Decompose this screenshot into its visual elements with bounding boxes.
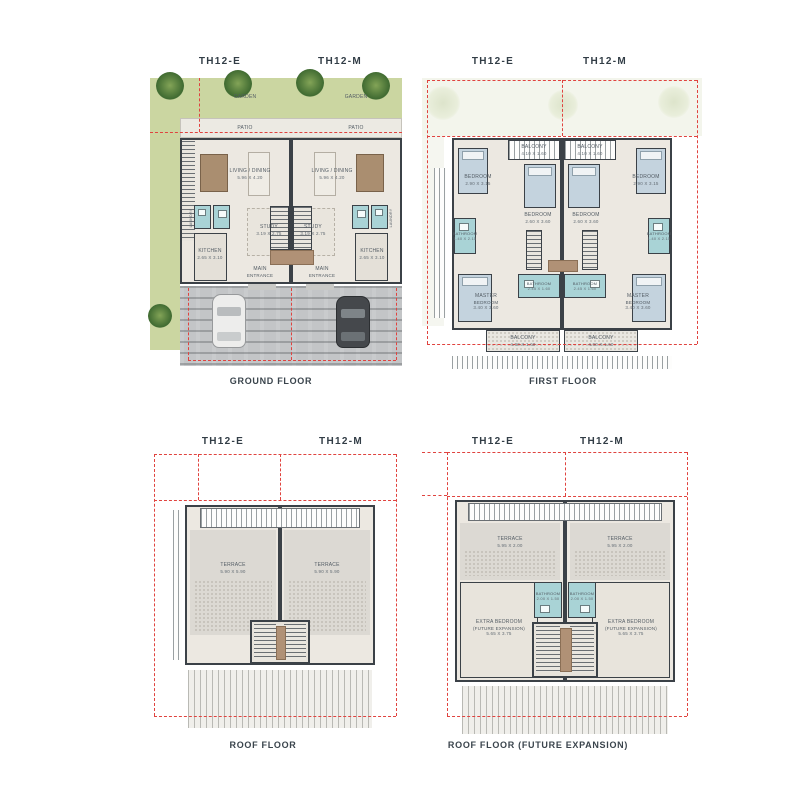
unit-label-ground-m: TH12-M	[318, 56, 362, 67]
bedroom-inner-label-e: BEDROOM 2.60 X 3.60	[524, 212, 551, 224]
master-dim: 3.40 X 3.60	[473, 305, 498, 311]
pergola-strip	[468, 503, 662, 521]
terrace-text: TERRACE	[314, 562, 339, 569]
bedroom-dim: 2.90 X 3.15	[632, 180, 659, 186]
living-text: LIVING / DINING	[229, 168, 270, 175]
terrace-label-e: TERRACE 5.90 X 5.90	[220, 562, 245, 574]
caption-first-floor: FIRST FLOOR	[529, 376, 597, 386]
plot-line	[280, 454, 281, 500]
bed-outer-m	[636, 148, 666, 194]
balcony-dim: 4.00 X 1.60	[588, 341, 613, 347]
unit-label-first-e: TH12-E	[472, 56, 514, 67]
plot-line	[150, 132, 402, 133]
ground-floor-plan: GARDEN GARDEN PATIO PATIO LIVING / DININ…	[150, 78, 402, 370]
bedroom-text: BEDROOM	[572, 212, 599, 219]
bedroom-inner-label-m: BEDROOM 2.60 X 3.60	[572, 212, 599, 224]
extra-bedroom-label-e: EXTRA BEDROOM (FUTURE EXPANSION) 5.65 X …	[473, 619, 525, 637]
tree-wash-icon	[658, 86, 690, 118]
patio-label-e: PATIO	[237, 125, 252, 132]
terrace-dim: 5.90 X 5.90	[314, 568, 339, 574]
plot-line	[687, 452, 688, 716]
laundry-label-e: LAUNDRY	[189, 209, 193, 228]
car-windshield	[217, 307, 241, 316]
balcony-dim: 4.00 X 1.60	[510, 341, 535, 347]
palm-tree-icon	[148, 304, 172, 328]
bathroom-mid-label-e: BATHROOM 2.45 X 1.60	[527, 281, 551, 291]
kitchen-dim: 2.65 X 3.10	[197, 254, 222, 260]
plot-line	[447, 452, 687, 453]
patio-text: PATIO	[237, 125, 252, 132]
bathroom-m	[371, 205, 388, 229]
plot-line	[447, 452, 448, 716]
car-rear-window	[341, 332, 365, 341]
living-text: LIVING / DINING	[311, 168, 352, 175]
living-dim: 5.96 X 4.20	[229, 174, 270, 180]
tree-wash-icon	[426, 86, 460, 120]
plot-line	[198, 454, 199, 500]
roof-floor-plan: TERRACE 5.90 X 5.90 TERRACE 5.90 X 5.90	[150, 450, 400, 742]
bed-outer-e	[458, 148, 488, 194]
terrace-text: TERRACE	[497, 536, 522, 543]
terrace-text: TERRACE	[220, 562, 245, 569]
balcony-text: BALCONY	[577, 144, 602, 151]
bedroom-text: BEDROOM	[632, 174, 659, 181]
plot-line	[697, 80, 698, 344]
plot-line	[154, 500, 396, 501]
plot-line	[396, 288, 397, 360]
bathroom-label-m: BATHROOM 2.00 X 1.50	[570, 591, 594, 601]
kitchen-text: KITCHEN	[197, 248, 222, 255]
patio-label-m: PATIO	[348, 125, 363, 132]
study-text: STUDY	[256, 224, 281, 231]
balcony-dim: 4.10 X 1.60	[577, 150, 602, 156]
master-bedroom-label-e: MASTER BEDROOM 3.40 X 3.60	[473, 293, 498, 311]
balcony-dim: 4.10 X 1.60	[521, 150, 546, 156]
bedroom-dim: 2.90 X 3.15	[464, 180, 491, 186]
side-path	[434, 168, 446, 318]
plot-line	[199, 78, 200, 132]
study-dim: 3.19 X 2.75	[300, 230, 325, 236]
bathroom-dim: 1.40 X 2.15	[647, 236, 671, 241]
bathroom-mid-label-m: BATHROOM 2.45 X 1.60	[573, 281, 597, 291]
plot-line	[427, 136, 697, 137]
study-label-m: STUDY 3.19 X 2.75	[300, 224, 325, 236]
main-entrance-label-m: MAIN ENTRANCE	[309, 266, 335, 278]
bedroom-text: BEDROOM	[464, 174, 491, 181]
entrance-text-2: ENTRANCE	[309, 272, 335, 278]
stair-landing	[560, 628, 572, 672]
plot-line	[562, 80, 563, 136]
first-floor-plan: BALCONY 4.10 X 1.60 BALCONY 4.10 X 1.60 …	[422, 78, 702, 370]
study-label-e: STUDY 3.19 X 2.75	[256, 224, 281, 236]
terrace-label-m: TERRACE 5.95 X 2.00	[607, 536, 632, 548]
palm-tree-icon	[296, 69, 324, 97]
stairs-e	[254, 624, 276, 660]
stairs-m	[582, 230, 598, 270]
unit-label-roof-m: TH12-M	[319, 436, 363, 447]
master-dim: 3.40 X 3.60	[625, 305, 650, 311]
plot-line	[447, 496, 687, 497]
bathroom-dim: 2.00 X 1.50	[536, 596, 560, 601]
ground-hatch	[462, 686, 668, 734]
plot-line	[291, 288, 292, 360]
unit-label-roofx-e: TH12-E	[472, 436, 514, 447]
patio-strip	[180, 118, 402, 138]
plot-line	[188, 288, 189, 360]
extra-bedroom-dim: 5.65 X 3.75	[605, 631, 657, 637]
bathroom-label-e: BATHROOM 2.00 X 1.50	[536, 591, 560, 601]
balcony-bottom-label-e: BALCONY 4.00 X 1.60	[510, 335, 535, 347]
bathroom-side-label-m: BATHROOM 1.40 X 2.15	[647, 231, 671, 241]
car-windshield	[341, 309, 365, 318]
master-bedroom-label-m: MASTER BEDROOM 3.40 X 3.60	[625, 293, 650, 311]
unit-label-first-m: TH12-M	[583, 56, 627, 67]
ground-edge-hatch	[452, 356, 672, 369]
stair-landing	[548, 260, 578, 272]
bathroom-dim: 2.45 X 1.60	[573, 286, 597, 291]
plot-line	[422, 495, 447, 496]
pergola-strip	[200, 508, 360, 528]
dining-table-m	[356, 154, 384, 192]
bathroom-dim: 1.40 X 2.15	[453, 236, 477, 241]
side-path	[173, 510, 182, 660]
unit-label-roofx-m: TH12-M	[580, 436, 624, 447]
bedroom-text: BEDROOM	[524, 212, 551, 219]
plot-line	[427, 344, 697, 345]
bedroom-outer-label-e: BEDROOM 2.90 X 3.15	[464, 174, 491, 186]
extra-bedroom-label-m: EXTRA BEDROOM (FUTURE EXPANSION) 5.65 X …	[605, 619, 657, 637]
caption-ground-floor: GROUND FLOOR	[230, 376, 312, 386]
entry-porch-e	[248, 284, 276, 290]
bathroom-dim: 2.00 X 1.50	[570, 596, 594, 601]
extra-bedroom-dim: 5.65 X 3.75	[473, 631, 525, 637]
stairs-e	[526, 230, 542, 270]
palm-tree-icon	[156, 72, 184, 100]
living-dim: 5.96 X 4.20	[311, 174, 352, 180]
bedroom-dim: 2.60 X 3.60	[524, 218, 551, 224]
kitchen-label-m: KITCHEN 2.65 X 3.10	[359, 248, 384, 260]
kitchen-label-e: KITCHEN 2.65 X 3.10	[197, 248, 222, 260]
entry-porch-m	[306, 284, 334, 290]
tree-wash-icon	[548, 90, 578, 120]
car-dark	[336, 296, 370, 348]
bathroom-m2	[352, 205, 369, 229]
car-rear-window	[217, 332, 241, 341]
bathroom-side-label-e: BATHROOM 1.40 X 2.15	[453, 231, 477, 241]
terrace-paving-e	[464, 550, 556, 576]
living-dining-label-m: LIVING / DINING 5.96 X 4.20	[311, 168, 352, 180]
plot-line	[154, 454, 155, 716]
master-text-1: MASTER	[625, 293, 650, 300]
bed-inner-e	[524, 164, 556, 208]
terrace-dim: 5.95 X 2.00	[497, 542, 522, 548]
balcony-text: BALCONY	[510, 335, 535, 342]
main-entrance-label-e: MAIN ENTRANCE	[247, 266, 273, 278]
stairs-m	[570, 626, 594, 672]
unit-label-ground-e: TH12-E	[199, 56, 241, 67]
stairs-m	[284, 624, 306, 660]
terrace-paving-m	[574, 550, 666, 576]
balcony-bottom-label-m: BALCONY 4.00 X 1.60	[588, 335, 613, 347]
floor-plan-sheet: TH12-E TH12-M TH12-E TH12-M TH12-E TH12-…	[0, 0, 800, 800]
garden-text: GARDEN	[345, 94, 368, 101]
study-text: STUDY	[300, 224, 325, 231]
unit-label-roof-e: TH12-E	[202, 436, 244, 447]
balcony-text: BALCONY	[521, 144, 546, 151]
garden-label-m: GARDEN	[345, 94, 368, 101]
stairs-e	[536, 626, 560, 672]
roof-future-plan: TERRACE 5.95 X 2.00 TERRACE 5.95 X 2.00 …	[422, 450, 702, 742]
terrace-dim: 5.90 X 5.90	[220, 568, 245, 574]
terrace-dim: 5.95 X 2.00	[607, 542, 632, 548]
car-white	[212, 294, 246, 348]
extra-bedroom-text-1: EXTRA BEDROOM	[605, 619, 657, 626]
bedroom-dim: 2.60 X 3.60	[572, 218, 599, 224]
bathroom-dim: 2.45 X 1.60	[527, 286, 551, 291]
plot-line	[154, 716, 396, 717]
dining-table-e	[200, 154, 228, 192]
bed-inner-m	[568, 164, 600, 208]
kitchen-dim: 2.65 X 3.10	[359, 254, 384, 260]
plot-line	[396, 454, 397, 716]
balcony-top-label-m: BALCONY 4.10 X 1.60	[577, 144, 602, 156]
bedroom-outer-label-m: BEDROOM 2.90 X 3.15	[632, 174, 659, 186]
living-dining-label-e: LIVING / DINING 5.96 X 4.20	[229, 168, 270, 180]
stair-landing	[276, 626, 286, 660]
terrace-text: TERRACE	[607, 536, 632, 543]
plot-line	[188, 360, 396, 361]
ground-hatch	[188, 670, 372, 728]
laundry-label-m: LAUNDRY	[389, 209, 393, 228]
study-dim: 3.19 X 2.75	[256, 230, 281, 236]
plot-line	[447, 716, 687, 717]
garden-label-e: GARDEN	[234, 94, 257, 101]
plot-line	[427, 80, 428, 344]
kitchen-text: KITCHEN	[359, 248, 384, 255]
extra-bedroom-text-1: EXTRA BEDROOM	[473, 619, 525, 626]
terrace-label-m: TERRACE 5.90 X 5.90	[314, 562, 339, 574]
garden-text: GARDEN	[234, 94, 257, 101]
terrace-label-e: TERRACE 5.95 X 2.00	[497, 536, 522, 548]
party-wall	[560, 138, 564, 330]
bathroom-e	[194, 205, 211, 229]
bathroom-e2	[213, 205, 230, 229]
balcony-text: BALCONY	[588, 335, 613, 342]
entrance-text-2: ENTRANCE	[247, 272, 273, 278]
plot-line	[565, 452, 566, 496]
plot-line	[154, 454, 396, 455]
plot-line	[422, 452, 447, 453]
patio-text: PATIO	[348, 125, 363, 132]
balcony-top-label-e: BALCONY 4.10 X 1.60	[521, 144, 546, 156]
stair-landing	[270, 250, 314, 265]
master-text-1: MASTER	[473, 293, 498, 300]
